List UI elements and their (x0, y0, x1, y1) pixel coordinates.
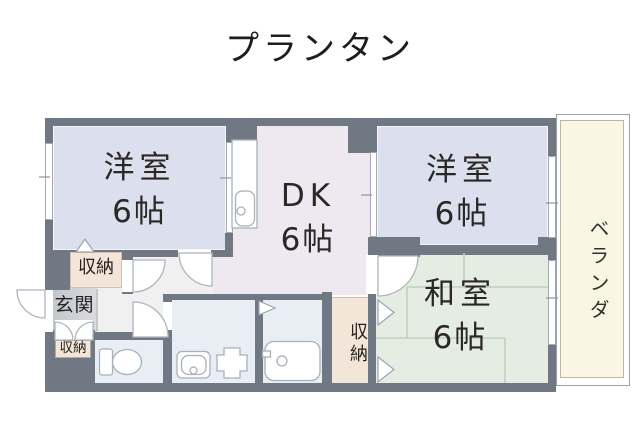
closet-entrance-door-arc-left (55, 322, 73, 340)
veranda-label: ベランダ (572, 192, 608, 352)
hall-door-arc-lower (133, 302, 168, 337)
closet-west1-label: 収納 (70, 259, 122, 277)
bathtub (265, 342, 320, 381)
bathtub-faucet (263, 351, 271, 357)
hall-door-arc-upper (133, 260, 165, 292)
entrance-label: 玄関 (52, 296, 97, 315)
closet-west1-door-triangle (76, 239, 94, 252)
closet-entrance-door-arc-right (75, 322, 93, 340)
closet-bath-label: 収納 (336, 306, 366, 382)
room-japanese-size: 6帖 (390, 316, 530, 360)
plan-title: プランタン (0, 32, 640, 66)
room-dk-size: 6帖 (243, 218, 373, 262)
room-japanese-name: 和室 (390, 272, 530, 316)
closet-entrance-label: 収納 (55, 342, 91, 356)
toilet-tank (100, 349, 113, 375)
room-japanese-label: 和室 6帖 (390, 272, 530, 360)
west1-door-arc (179, 253, 212, 286)
room-western1-name: 洋室 (63, 146, 216, 190)
bathroom-door-triangle (259, 301, 275, 315)
floor-plan: プランタン 洋室 6帖 DK 6帖 洋室 6帖 和室 6帖 ベランダ 玄関 収納… (0, 0, 640, 426)
room-dk-name: DK (243, 174, 373, 218)
room-western2-size: 6帖 (392, 192, 532, 236)
washing-machine-pan (217, 348, 247, 378)
room-dk-label: DK 6帖 (243, 174, 373, 262)
room-western2-label: 洋室 6帖 (392, 148, 532, 236)
bathtub-drain (277, 356, 287, 366)
closet-bath-door-triangle-lower (378, 357, 394, 382)
room-western1-label: 洋室 6帖 (63, 146, 216, 234)
toilet-bowl (113, 350, 142, 375)
room-western1-size: 6帖 (63, 190, 216, 234)
washbasin-drain (190, 367, 197, 374)
entrance-door-arc (17, 290, 45, 318)
room-western2-name: 洋室 (392, 148, 532, 192)
